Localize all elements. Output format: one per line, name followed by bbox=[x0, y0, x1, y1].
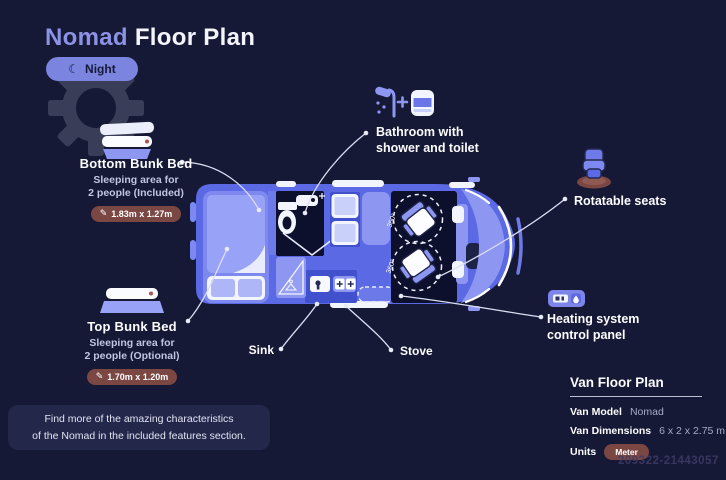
night-toggle-label: Night bbox=[85, 62, 116, 76]
footer-note-line1: Find more of the amazing characteristics bbox=[8, 411, 270, 427]
title-brand: Nomad bbox=[45, 24, 128, 51]
spec-divider bbox=[570, 396, 702, 397]
ruler-icon: ✎ bbox=[96, 372, 104, 381]
top-bunk-bed-icon bbox=[100, 288, 164, 313]
floor-plan-page: 360° 360° bbox=[0, 0, 726, 480]
callout-bottom-bunk: Bottom Bunk Bed Sleeping area for 2 peop… bbox=[56, 156, 216, 222]
heater-unit bbox=[358, 287, 394, 302]
spec-value: 6 x 2 x 2.75 m bbox=[659, 425, 725, 437]
spec-row-van-dimensions: Van Dimensions 6 x 2 x 2.75 m bbox=[570, 425, 722, 437]
heating-panel-icon bbox=[548, 290, 585, 307]
stove-label: Stove bbox=[400, 344, 433, 360]
title-rest: Floor Plan bbox=[135, 24, 255, 51]
top-bunk-dimensions-badge: ✎ 1.70m x 1.20m bbox=[87, 369, 178, 385]
top-bunk-title: Top Bunk Bed bbox=[52, 319, 212, 334]
spec-row-van-model: Van Model Nomad bbox=[570, 406, 722, 418]
front-bumper bbox=[518, 219, 521, 273]
footer-note-line2: of the Nomad in the included features se… bbox=[8, 428, 270, 444]
spec-value: Nomad bbox=[630, 406, 664, 418]
top-bunk-sub-1: Sleeping area for bbox=[52, 337, 212, 350]
van-floor-plan: 360° 360° bbox=[190, 177, 521, 311]
spec-label: Van Dimensions bbox=[570, 425, 651, 437]
heating-label: Heating system control panel bbox=[547, 311, 639, 344]
top-bunk-sub-2: 2 people (Optional) bbox=[52, 350, 212, 363]
dinette-area bbox=[330, 192, 390, 247]
rotatable-seat-icon bbox=[577, 149, 611, 189]
bottom-bunk-dimensions: 1.83m x 1.27m bbox=[111, 209, 172, 219]
bathroom-label-line1: Bathroom with bbox=[376, 124, 479, 140]
spec-label: Van Model bbox=[570, 406, 622, 418]
ruler-icon: ✎ bbox=[100, 209, 108, 218]
footer-note: Find more of the amazing characteristics… bbox=[8, 405, 270, 450]
bathroom-label-line2: shower and toilet bbox=[376, 140, 479, 156]
rotatable-seats-label: Rotatable seats bbox=[574, 193, 666, 209]
bathroom-label: Bathroom with shower and toilet bbox=[376, 124, 479, 157]
plus-icon bbox=[398, 98, 407, 107]
bottom-bunk-bed-icon bbox=[100, 122, 155, 159]
shower-icon bbox=[374, 86, 394, 116]
spec-panel-title: Van Floor Plan bbox=[570, 375, 722, 390]
moon-icon: ☾ bbox=[68, 63, 79, 75]
bottom-bunk-dimensions-badge: ✎ 1.83m x 1.27m bbox=[91, 206, 182, 222]
heating-label-line1: Heating system bbox=[547, 311, 639, 327]
callout-top-bunk: Top Bunk Bed Sleeping area for 2 people … bbox=[52, 319, 212, 385]
top-bunk-dimensions: 1.70m x 1.20m bbox=[107, 372, 168, 382]
toilet-icon bbox=[411, 90, 434, 116]
sink-label: Sink bbox=[228, 343, 274, 359]
heating-label-line2: control panel bbox=[547, 327, 639, 343]
spec-label: Units bbox=[570, 446, 596, 458]
toilet-shape bbox=[278, 202, 297, 210]
page-title: NomadFloor Plan bbox=[45, 24, 255, 52]
night-toggle[interactable]: ☾ Night bbox=[46, 57, 138, 81]
bottom-bunk-sub-1: Sleeping area for bbox=[56, 174, 216, 187]
bottom-bunk-title: Bottom Bunk Bed bbox=[56, 156, 216, 171]
watermark-id: 209322-21443057 bbox=[618, 455, 719, 467]
spec-panel: Van Floor Plan Van Model Nomad Van Dimen… bbox=[570, 375, 722, 467]
bottom-bunk-sub-2: 2 people (Included) bbox=[56, 187, 216, 200]
